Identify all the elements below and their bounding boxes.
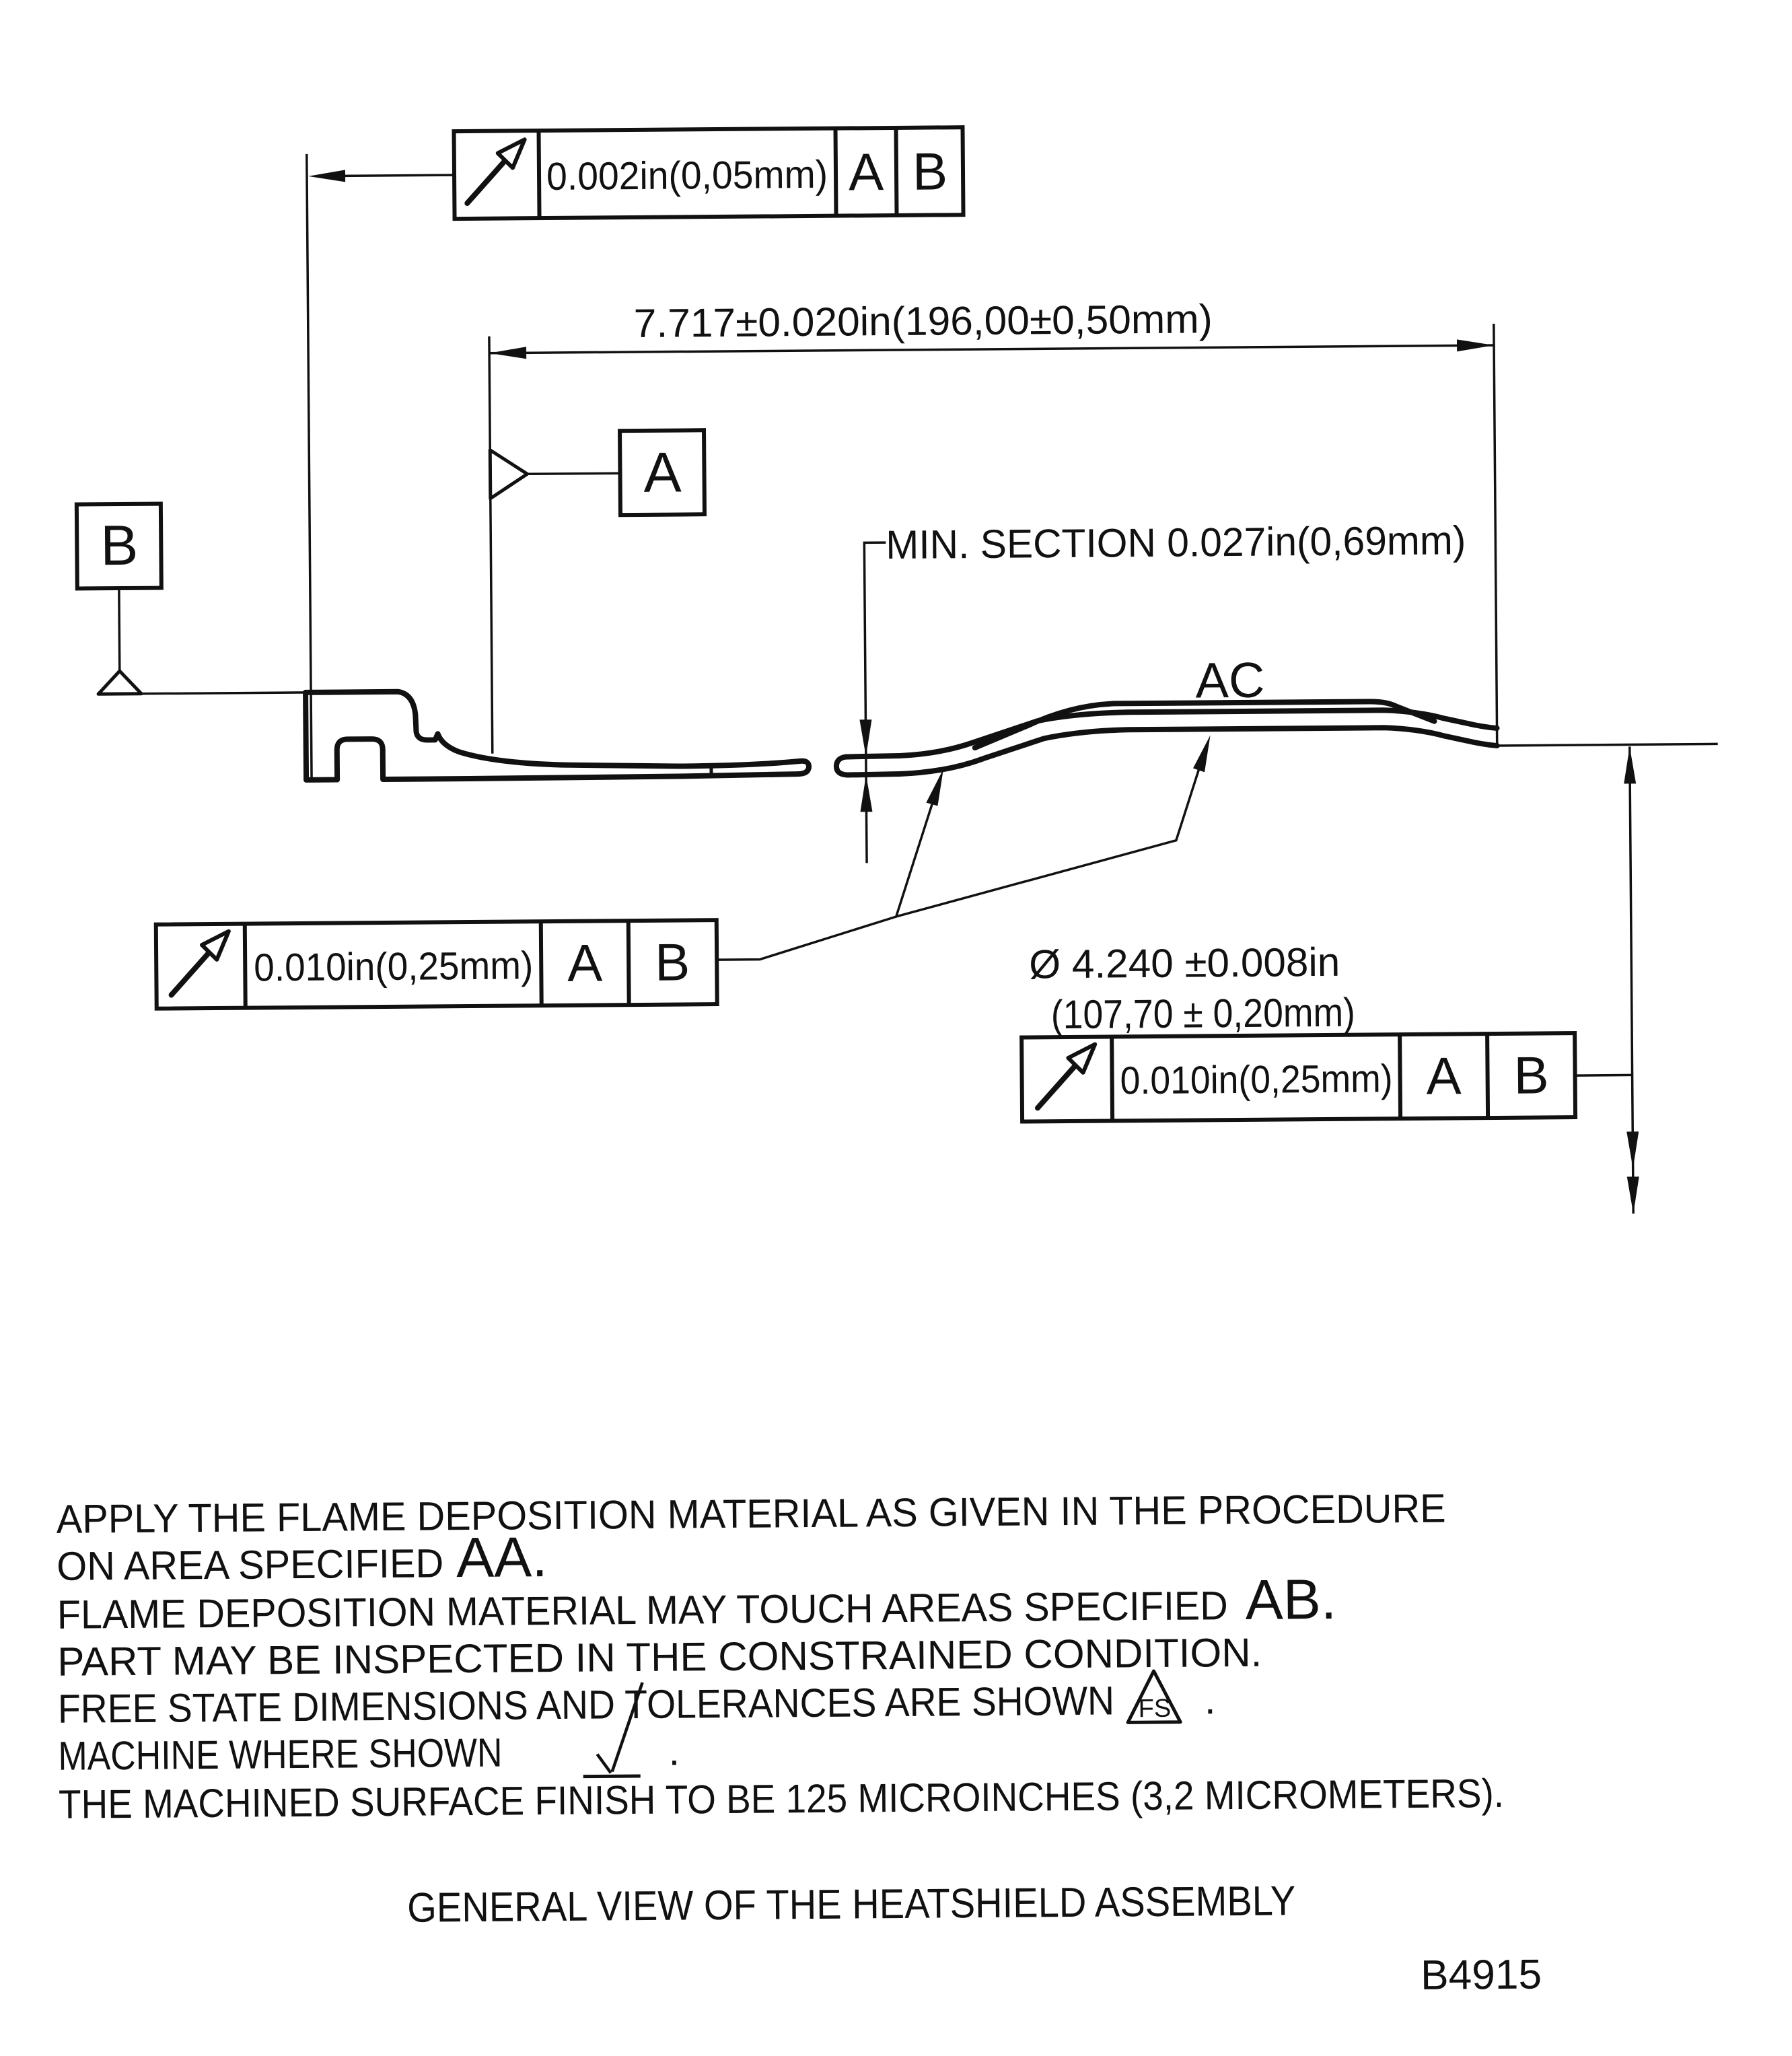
- datum-b-letter: B: [100, 513, 139, 577]
- note-line-5-period: .: [1205, 1677, 1216, 1722]
- fcf-lower-right: 0.010in(0,25mm) A B: [1022, 1032, 1633, 1121]
- sheet-interface-edge: [845, 709, 1497, 757]
- min-section-leader: [864, 542, 888, 863]
- fcf-top-datum-a: A: [849, 142, 884, 201]
- min-section-callout: MIN. SECTION 0.027in(0,69mm): [858, 518, 1468, 863]
- note-line-2-area-label: AA.: [456, 1525, 548, 1589]
- fcf-lower-left-datum-b: B: [655, 932, 690, 991]
- fcf-lower-left-datum-a: A: [567, 933, 603, 992]
- length-dimension-text: 7.717±0.020in(196,00±0,50mm): [634, 296, 1213, 346]
- fcf-top-leader-arrow: [308, 170, 345, 182]
- length-ext-line-right: [1494, 324, 1497, 744]
- note-line-7: THE MACHINED SURFACE FINISH TO BE 125 MI…: [59, 1771, 1504, 1827]
- note-line-4: PART MAY BE INSPECTED IN THE CONSTRAINED…: [57, 1630, 1262, 1685]
- fcf-top-tolerance: 0.002in(0,05mm): [546, 153, 828, 199]
- datum-b: B: [77, 504, 162, 695]
- note-line-3: FLAME DEPOSITION MATERIAL MAY TOUCH AREA…: [57, 1583, 1228, 1637]
- view-title: GENERAL VIEW OF THE HEATSHIELD ASSEMBLY: [407, 1878, 1296, 1931]
- note-line-2: ON AREA SPECIFIED: [57, 1540, 444, 1589]
- drawing-sheet: 0.002in(0,05mm) A B B 7.717±0.020in(196,…: [46, 121, 1728, 2009]
- min-section-text: MIN. SECTION 0.027in(0,69mm): [886, 518, 1466, 567]
- fcf-top: 0.002in(0,05mm) A B: [308, 127, 964, 220]
- diameter-dimension-inches: Ø 4.240 ±0.008in: [1029, 940, 1340, 987]
- fcf-lower-right-connector: [1575, 1075, 1633, 1075]
- fcf-top-datum-b: B: [912, 141, 948, 201]
- diameter-dimension: Ø 4.240 ±0.008in (107,70 ± 0,20mm): [1029, 940, 1355, 1038]
- note-line-5: FREE STATE DIMENSIONS AND TOLERANCES ARE…: [58, 1678, 1114, 1731]
- note-line-6-period: .: [668, 1729, 680, 1774]
- note-line-6: MACHINE WHERE SHOWN: [58, 1730, 503, 1779]
- left-extension-line: [307, 154, 312, 780]
- fcf-lower-right-datum-b: B: [1513, 1045, 1549, 1104]
- datum-a-letter: A: [643, 440, 682, 503]
- diameter-dimension-mm: (107,70 ± 0,20mm): [1051, 990, 1356, 1038]
- length-dimension-line: [489, 345, 1494, 353]
- datum-b-triangle-icon: [98, 671, 141, 695]
- engineering-drawing-canvas: 0.002in(0,05mm) A B B 7.717±0.020in(196,…: [0, 0, 1792, 2056]
- fcf-top-leader: [338, 175, 454, 176]
- note-line-1: APPLY THE FLAME DEPOSITION MATERIAL AS G…: [56, 1486, 1445, 1542]
- fcf-lower-left-tolerance: 0.010in(0,25mm): [254, 944, 533, 989]
- drawing-number: B4915: [1421, 1952, 1542, 1999]
- notes-block: APPLY THE FLAME DEPOSITION MATERIAL AS G…: [56, 1485, 1504, 1827]
- free-state-symbol-text: FS: [1139, 1695, 1172, 1723]
- fcf-lower-right-tolerance: 0.010in(0,25mm): [1120, 1057, 1392, 1102]
- diameter-dimension-line: [1624, 746, 1639, 1213]
- heatshield-left-section-outline: [306, 688, 809, 780]
- fcf-lower-left-leader-1: [715, 783, 940, 960]
- datum-a: A: [490, 430, 705, 516]
- note-line-3-area-label: AB.: [1245, 1567, 1336, 1631]
- area-ac-label: AC: [1195, 652, 1264, 709]
- fcf-lower-right-datum-a: A: [1426, 1046, 1462, 1105]
- length-ext-line-left: [489, 336, 493, 754]
- datum-a-triangle-icon: [490, 450, 528, 498]
- baseline-extension: [1497, 744, 1718, 746]
